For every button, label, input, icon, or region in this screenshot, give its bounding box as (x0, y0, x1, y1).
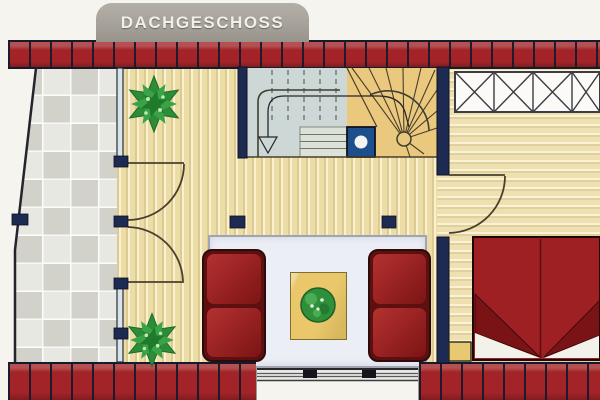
sofa-cushion (206, 253, 262, 305)
page-title: DACHGESCHOSS (121, 13, 284, 33)
sofa-left (202, 249, 266, 362)
gallery-wood-floor (437, 68, 600, 362)
sofa-cushion (206, 307, 262, 359)
sliding-window (256, 368, 419, 400)
bottom-brick-wall-left (8, 362, 256, 400)
sofa-cushion (372, 253, 427, 305)
coffee-mat (290, 272, 347, 340)
sofa-cushion (372, 307, 427, 359)
bottom-brick-wall-right (419, 362, 600, 400)
title-banner: DACHGESCHOSS (96, 3, 309, 42)
floor-plan: DACHGESCHOSS (0, 0, 600, 400)
window-handle (362, 370, 376, 378)
top-brick-wall (8, 40, 600, 69)
sofa-right (368, 249, 431, 362)
stone-terrace (14, 68, 117, 362)
window-handle (303, 370, 317, 378)
